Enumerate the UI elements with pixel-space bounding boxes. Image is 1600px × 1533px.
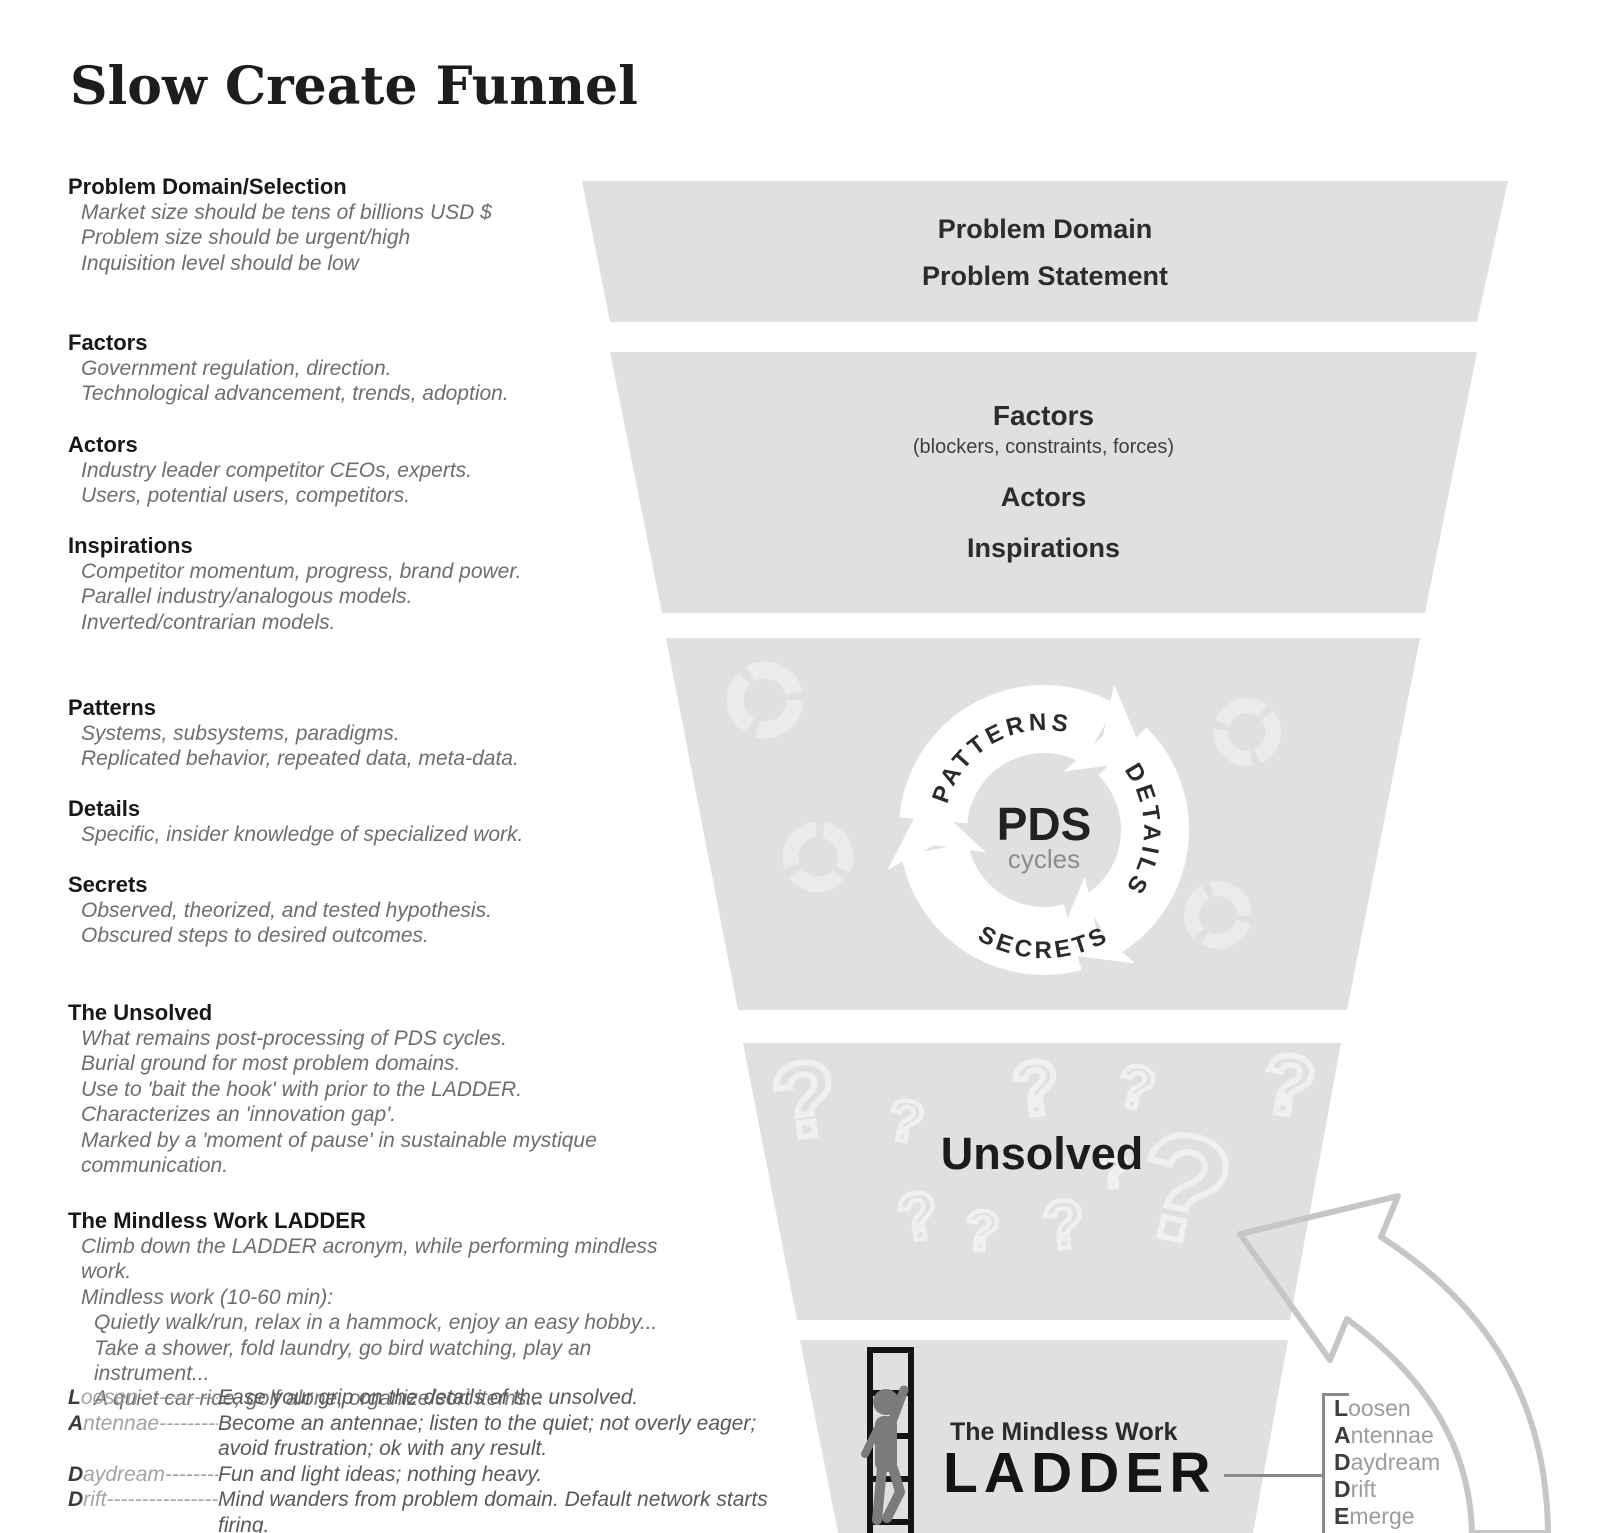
acronym-rest: oosen — [81, 1386, 138, 1409]
question-mark-icon: ? — [1009, 1049, 1062, 1128]
acronym-term: Daydream--------------- — [68, 1462, 218, 1488]
acronym-rest: ntennae — [83, 1412, 159, 1435]
page-title: Slow Create Funnel — [70, 56, 638, 117]
section-heading: Actors — [68, 432, 708, 457]
ladder-icon — [840, 1340, 925, 1533]
acronym-dashes: ---------------------- — [107, 1488, 219, 1511]
section-item: Marked by a 'moment of pause' in sustain… — [68, 1128, 708, 1179]
section-item: Replicated behavior, repeated data, meta… — [68, 746, 708, 771]
acronym-term: Antennae---------------- — [68, 1411, 218, 1462]
acronym-dashes: --------------- — [165, 1463, 218, 1486]
acronym-letter: D — [68, 1488, 83, 1511]
section-item: Take a shower, fold laundry, go bird wat… — [68, 1336, 708, 1387]
acronym-term: Loosen-------------------- — [68, 1385, 218, 1411]
pds-cycle-diagram: PATTERNS DETAILS SECRETS PDS cycles — [864, 650, 1224, 1010]
ladder-acronym-definitions: Loosen-------------------- Ease your gri… — [68, 1385, 798, 1533]
acronym-desc: Become an antennae; listen to the quiet;… — [218, 1411, 798, 1462]
section-actors: Actors Industry leader competitor CEOs, … — [68, 432, 708, 509]
section-item: Burial ground for most problem domains. — [68, 1051, 708, 1076]
acronym-dashes: ---------------- — [159, 1412, 218, 1435]
section-item: What remains post-processing of PDS cycl… — [68, 1026, 708, 1051]
section-heading: Details — [68, 796, 708, 821]
acronym-letter: L — [68, 1386, 81, 1409]
section-the-unsolved: The Unsolved What remains post-processin… — [68, 1000, 708, 1178]
stage-label: Problem Statement — [582, 261, 1508, 292]
question-mark-icon: ? — [962, 1201, 1002, 1260]
pds-center-sublabel: cycles — [1008, 844, 1080, 874]
stage-sublabel: (blockers, constraints, forces) — [610, 436, 1477, 459]
section-item: Industry leader competitor CEOs, experts… — [68, 458, 708, 483]
acronym-rest: aydream — [83, 1463, 165, 1486]
acronym-dashes: -------------------- — [138, 1386, 218, 1409]
section-item: Specific, insider knowledge of specializ… — [68, 822, 708, 847]
section-item: Use to 'bait the hook' with prior to the… — [68, 1077, 708, 1102]
section-item: Mindless work (10-60 min): — [68, 1285, 708, 1310]
funnel-stage-pds-cycles: PATTERNS DETAILS SECRETS PDS cycles — [666, 638, 1420, 1010]
section-item: Quietly walk/run, relax in a hammock, en… — [68, 1310, 708, 1335]
cycle-watermark-icon — [772, 811, 864, 903]
acronym-term: Drift---------------------- — [68, 1487, 218, 1533]
cycle-watermark-icon — [715, 650, 815, 750]
stage-label: Factors — [610, 400, 1477, 432]
acronym-desc: Fun and light ideas; nothing heavy. — [218, 1462, 798, 1488]
section-heading: Patterns — [68, 695, 708, 720]
section-heading: Inspirations — [68, 533, 708, 558]
acronym-letter: A — [68, 1412, 83, 1435]
section-item: Systems, subsystems, paradigms. — [68, 721, 708, 746]
section-item: Technological advancement, trends, adopt… — [68, 381, 708, 406]
section-item: Observed, theorized, and tested hypothes… — [68, 898, 708, 923]
acronym-row-loosen: Loosen-------------------- Ease your gri… — [68, 1385, 798, 1411]
acronym-row-drift: Drift---------------------- Mind wanders… — [68, 1487, 798, 1533]
section-item: Characterizes an 'innovation gap'. — [68, 1102, 708, 1127]
acronym-row-daydream: Daydream--------------- Fun and light id… — [68, 1462, 798, 1488]
acronym-rest: rift — [83, 1488, 106, 1511]
section-item: Users, potential users, competitors. — [68, 483, 708, 508]
section-heading: The Unsolved — [68, 1000, 708, 1025]
section-item: Competitor momentum, progress, brand pow… — [68, 559, 708, 584]
section-factors: Factors Government regulation, direction… — [68, 330, 708, 407]
feedback-arrow-icon — [1180, 1150, 1600, 1533]
question-mark-icon: ? — [1256, 1039, 1321, 1131]
section-item: Climb down the LADDER acronym, while per… — [68, 1234, 708, 1285]
section-heading: Factors — [68, 330, 708, 355]
acronym-row-antennae: Antennae---------------- Become an anten… — [68, 1411, 798, 1462]
section-inspirations: Inspirations Competitor momentum, progre… — [68, 533, 708, 635]
section-secrets: Secrets Observed, theorized, and tested … — [68, 872, 708, 949]
acronym-desc: Ease your grip on the details of the uns… — [218, 1385, 798, 1411]
section-heading: Secrets — [68, 872, 708, 897]
section-mindless-work-ladder: The Mindless Work LADDER Climb down the … — [68, 1208, 708, 1412]
stage-label-ladder: LADDER — [943, 1440, 1217, 1506]
section-item: Inverted/contrarian models. — [68, 610, 708, 635]
question-mark-icon: ? — [893, 1180, 944, 1252]
stage-label: Problem Domain — [582, 214, 1508, 245]
pds-center-label: PDS — [997, 798, 1092, 850]
section-patterns: Patterns Systems, subsystems, paradigms.… — [68, 695, 708, 772]
slow-create-funnel-infographic: Slow Create Funnel Problem Domain/Select… — [0, 0, 1600, 1533]
stage-label: Actors — [610, 482, 1477, 513]
section-details: Details Specific, insider knowledge of s… — [68, 796, 708, 847]
section-item: Parallel industry/analogous models. — [68, 584, 708, 609]
question-mark-icon: ? — [1040, 1189, 1087, 1260]
section-item: Obscured steps to desired outcomes. — [68, 923, 708, 948]
section-heading: The Mindless Work LADDER — [68, 1208, 708, 1233]
acronym-desc: Mind wanders from problem domain. Defaul… — [218, 1487, 798, 1533]
funnel-stage-problem-domain: Problem Domain Problem Statement — [582, 181, 1508, 322]
funnel-stage-factors-actors-inspirations: Factors (blockers, constraints, forces) … — [610, 352, 1477, 613]
stage-label: Inspirations — [610, 533, 1477, 564]
acronym-letter: D — [68, 1463, 83, 1486]
